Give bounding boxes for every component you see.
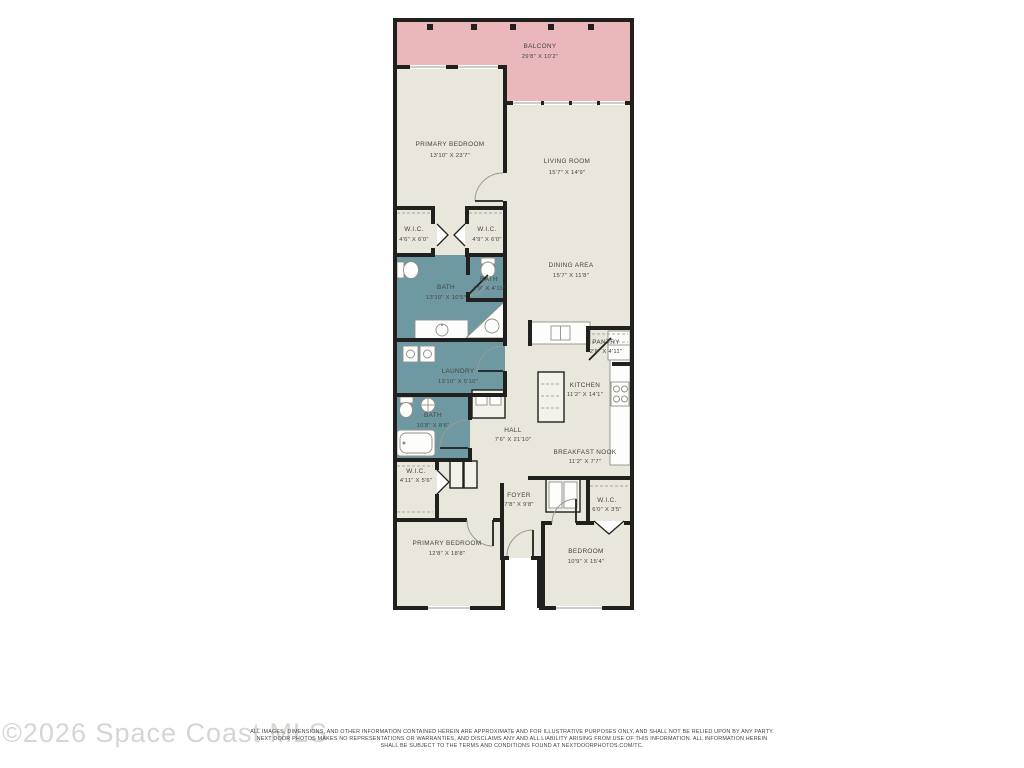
- vanity-sink-icon: [415, 320, 468, 340]
- label-wic-2: W.I.C.: [477, 226, 497, 233]
- label-bedroom: BEDROOM: [568, 548, 603, 555]
- disclaimer-line-3: SHALL BE SUBJECT TO THE TERMS AND CONDIT…: [0, 743, 1024, 750]
- label-balcony: BALCONY: [524, 43, 557, 50]
- label-wic-1: W.I.C.: [404, 226, 424, 233]
- dims-bath-small: 4'9" X 4'11": [473, 286, 506, 292]
- dryer-icon: [420, 346, 435, 362]
- window: [410, 65, 446, 69]
- hall-cabinet: [538, 372, 564, 422]
- dims-wic-3: 4'11" X 5'6": [400, 478, 433, 484]
- window: [556, 606, 602, 610]
- dims-foyer: 7'8" X 9'8": [504, 502, 534, 508]
- label-foyer: FOYER: [507, 492, 531, 499]
- bathtub-icon: [397, 430, 435, 456]
- label-bath-hall: BATH: [424, 412, 442, 419]
- kitchen-counter-sink-icon: [530, 322, 590, 344]
- entry-recess: [503, 558, 539, 608]
- window: [458, 65, 498, 69]
- label-breakfast-nook: BREAKFAST NOOK: [553, 449, 616, 456]
- closet-doors: [450, 461, 477, 488]
- coat-closet: [546, 478, 580, 512]
- label-dining-area: DINING AREA: [548, 262, 593, 269]
- toilet-icon: [400, 397, 414, 418]
- label-laundry: LAUNDRY: [442, 368, 475, 375]
- dims-living-room: 15'7" X 14'9": [549, 170, 586, 176]
- floor-plan: BALCONY 29'8" X 10'2" PRIMARY BEDROOM 13…: [0, 0, 1024, 768]
- disclaimer: ALL IMAGES, DIMENSIONS, AND OTHER INFORM…: [0, 729, 1024, 750]
- label-living-room: LIVING ROOM: [544, 158, 590, 165]
- label-wic-3: W.I.C.: [406, 468, 426, 475]
- dims-hall: 7'6" X 21'10": [495, 437, 532, 443]
- dims-breakfast-nook: 11'2" X 7'7": [569, 459, 602, 465]
- pedestal-sink-icon: [421, 398, 435, 412]
- label-kitchen: KITCHEN: [570, 382, 601, 389]
- label-primary-bedroom-2: PRIMARY BEDROOM: [413, 540, 482, 547]
- dims-wic-4: 6'0" X 3'5": [592, 507, 622, 513]
- label-pantry: PANTRY: [592, 339, 620, 346]
- dims-bath-primary: 13'10" X 10'5": [426, 295, 466, 301]
- window: [428, 606, 470, 610]
- dims-balcony: 29'8" X 10'2": [522, 54, 559, 60]
- dims-wic-1: 4'6" X 6'0": [399, 237, 429, 243]
- dims-laundry: 13'10" X 5'10": [438, 379, 478, 385]
- dims-pantry: 2'6" X 4'11": [590, 349, 623, 355]
- toilet-icon: [397, 262, 419, 279]
- dims-bedroom: 10'9" X 15'4": [568, 559, 605, 565]
- disclaimer-line-2: NEXT DOOR PHOTOS MAKES NO REPRESENTATION…: [0, 736, 1024, 743]
- sliding-door-window: [513, 101, 625, 105]
- dims-dining-area: 15'7" X 11'8": [553, 273, 589, 279]
- disclaimer-line-1: ALL IMAGES, DIMENSIONS, AND OTHER INFORM…: [0, 729, 1024, 736]
- label-bath-small: BATH: [480, 276, 498, 283]
- label-hall: HALL: [504, 427, 521, 434]
- dims-primary-bedroom-1: 13'10" X 23'7": [430, 153, 470, 159]
- dims-kitchen: 11'2" X 14'1": [567, 392, 603, 398]
- label-wic-4: W.I.C.: [597, 497, 617, 504]
- dims-wic-2: 4'9" X 6'0": [472, 237, 502, 243]
- dims-bath-hall: 10'8" X 8'6": [416, 423, 449, 429]
- label-bath-primary: BATH: [437, 284, 455, 291]
- washer-icon: [403, 346, 418, 362]
- label-primary-bedroom-1: PRIMARY BEDROOM: [416, 141, 485, 148]
- dims-primary-bedroom-2: 12'8" X 18'8": [429, 551, 466, 557]
